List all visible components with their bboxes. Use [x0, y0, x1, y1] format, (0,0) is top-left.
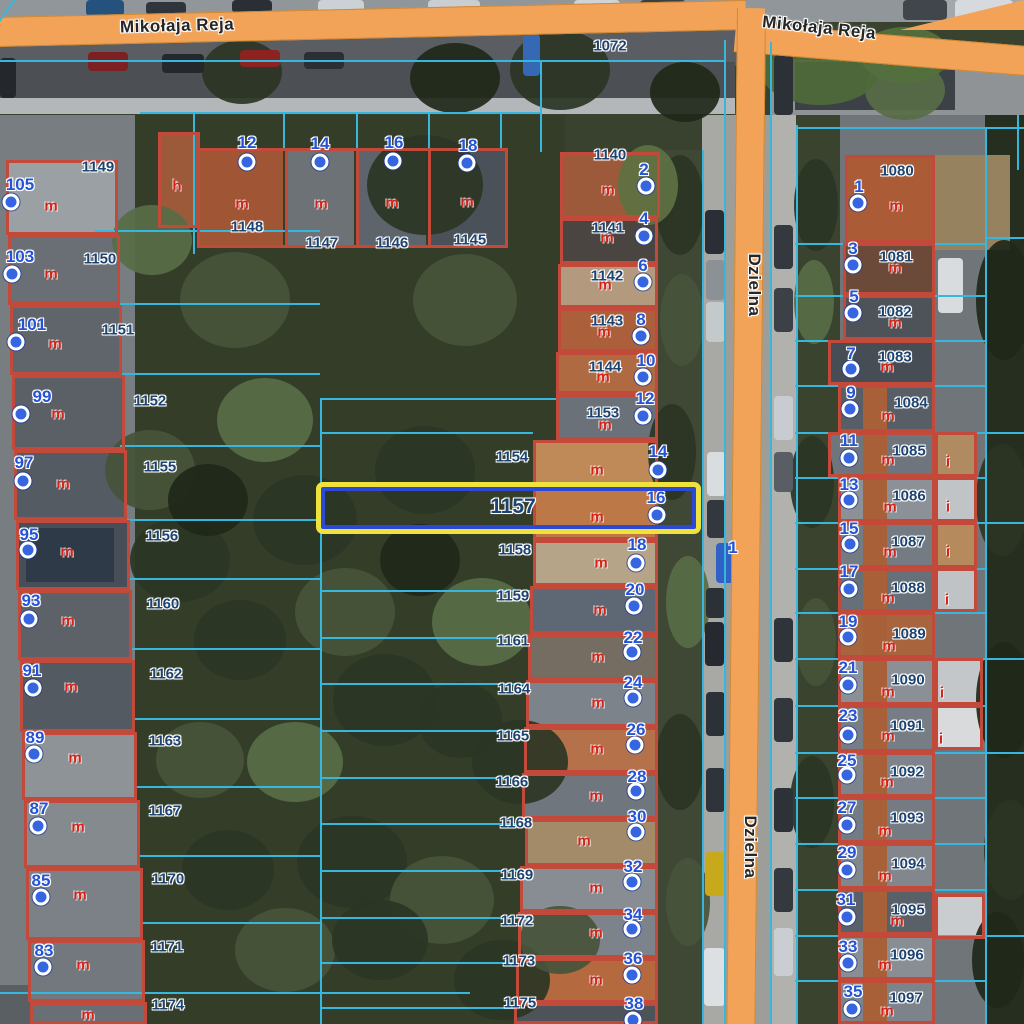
cadastral-parcel-line [110, 373, 320, 375]
address-point-18[interactable] [628, 555, 645, 572]
address-label-1: 1 [728, 538, 737, 558]
building-use-letter: m [878, 823, 891, 840]
address-label-11: 11 [840, 431, 858, 451]
aerial-patch [935, 155, 1010, 250]
parcel-label-1169[interactable]: 1169 [501, 867, 534, 884]
car [0, 58, 16, 98]
building-use-letter: h [172, 178, 181, 195]
building-use-letter: m [589, 880, 602, 897]
tree-canopy [168, 464, 248, 536]
address-label-14: 14 [649, 442, 668, 462]
tree-canopy [656, 714, 704, 810]
building-use-letter: m [68, 750, 81, 767]
cadastral-parcel-line [320, 730, 526, 732]
parcel-label-1175[interactable]: 1175 [504, 995, 537, 1012]
address-point-20[interactable] [626, 598, 643, 615]
cadastral-parcel-line [985, 237, 1024, 239]
building-use-letter: i [945, 592, 949, 609]
address-label-89: 89 [26, 728, 45, 748]
cadastral-parcel-line [95, 303, 320, 305]
address-label-17: 17 [840, 562, 859, 582]
address-label-35: 35 [844, 982, 863, 1002]
address-point-14[interactable] [650, 462, 667, 479]
cadastral-parcel-line [120, 445, 320, 447]
cadastral-parcel-line [320, 398, 558, 400]
tree-canopy [380, 524, 460, 596]
parcel-label-1150[interactable]: 1150 [84, 251, 117, 268]
address-point-103[interactable] [4, 266, 21, 283]
parcel-label-1152[interactable]: 1152 [134, 393, 167, 410]
address-label-15: 15 [840, 519, 859, 539]
parcel-label-1163[interactable]: 1163 [149, 733, 182, 750]
car [774, 928, 793, 976]
address-point-9[interactable] [842, 401, 859, 418]
address-point-83[interactable] [35, 959, 52, 976]
building-use-letter: m [81, 1007, 94, 1024]
building-use-letter: m [56, 476, 69, 493]
cadastral-parcel-line [140, 922, 320, 924]
address-label-34: 34 [624, 905, 643, 925]
parcel-label-1170[interactable]: 1170 [152, 871, 185, 888]
aerial-patch [658, 150, 702, 1024]
address-label-9: 9 [846, 383, 855, 403]
address-point-36[interactable] [624, 967, 641, 984]
address-point-2[interactable] [638, 178, 655, 195]
building-outline [935, 477, 977, 522]
car [774, 225, 793, 269]
parcel-label-1166[interactable]: 1166 [496, 774, 529, 791]
address-label-101: 101 [18, 315, 46, 335]
address-label-6: 6 [638, 256, 647, 276]
cadastral-parcel-line [320, 962, 518, 964]
car [706, 588, 725, 618]
address-point-31[interactable] [839, 909, 856, 926]
address-point-85[interactable] [33, 889, 50, 906]
car [774, 788, 793, 832]
cadastral-parcel-line [320, 823, 525, 825]
cadastral-parcel-line [140, 112, 542, 114]
address-label-25: 25 [838, 751, 857, 771]
cadastral-parcel-line [702, 150, 704, 1024]
building-divider [356, 148, 359, 248]
address-label-18: 18 [628, 535, 647, 555]
address-label-12: 12 [636, 389, 655, 409]
building-use-letter: m [888, 315, 901, 332]
tree-canopy [413, 254, 517, 346]
parcel-label-1093[interactable]: 1093 [890, 810, 923, 827]
parcel-label-1155[interactable]: 1155 [144, 459, 177, 476]
address-label-105: 105 [6, 175, 34, 195]
address-label-31: 31 [837, 890, 856, 910]
address-point-1[interactable] [850, 195, 867, 212]
tree-canopy [650, 62, 720, 122]
building-use-letter: m [60, 544, 73, 561]
car [705, 852, 725, 896]
tree-canopy [976, 444, 1024, 556]
tree-canopy [194, 600, 286, 680]
building-use-letter: m [51, 406, 64, 423]
address-label-83: 83 [35, 941, 54, 961]
parcel-label-1162[interactable]: 1162 [150, 666, 183, 683]
tree-canopy [202, 40, 282, 104]
address-point-4[interactable] [636, 228, 653, 245]
aerial-patch [135, 115, 565, 1024]
tree-canopy [865, 60, 945, 120]
building-use-letter: m [61, 613, 74, 630]
address-label-12: 12 [238, 133, 257, 153]
building-use-letter: m [881, 590, 894, 607]
address-label-26: 26 [627, 720, 646, 740]
address-label-33: 33 [839, 937, 858, 957]
parcel-label-1145[interactable]: 1145 [454, 232, 487, 249]
building-use-letter: m [597, 324, 610, 341]
car [240, 50, 280, 67]
car [774, 288, 793, 332]
parcel-label-1154[interactable]: 1154 [496, 449, 529, 466]
parcel-label-1148[interactable]: 1148 [231, 219, 264, 236]
tree-canopy [333, 654, 437, 746]
address-label-1: 1 [854, 177, 863, 197]
building-use-letter: i [946, 499, 950, 516]
tree-canopy [410, 43, 500, 113]
cadastral-parcel-line [130, 648, 320, 650]
address-label-5: 5 [849, 287, 858, 307]
parcel-label-1160[interactable]: 1160 [147, 596, 180, 613]
address-label-7: 7 [846, 344, 855, 364]
parcel-label-1072[interactable]: 1072 [593, 38, 626, 55]
aerial-patch [0, 62, 735, 100]
parcel-label-1151[interactable]: 1151 [102, 322, 135, 339]
car [938, 258, 963, 313]
tree-canopy [217, 378, 313, 462]
building-use-letter: m [881, 728, 894, 745]
building-divider [428, 148, 431, 248]
building-use-letter: m [594, 555, 607, 572]
address-label-87: 87 [30, 799, 49, 819]
building-use-letter: m [598, 277, 611, 294]
building-use-letter: m [73, 887, 86, 904]
address-label-19: 19 [839, 612, 858, 632]
parcel-label-1165[interactable]: 1165 [497, 728, 530, 745]
aerial-patch [770, 115, 796, 1024]
building-use-letter: m [590, 462, 603, 479]
parcel-label-1092[interactable]: 1092 [890, 764, 923, 781]
parcel-label-1096[interactable]: 1096 [890, 947, 923, 964]
address-label-2: 2 [639, 160, 648, 180]
address-point-14[interactable] [312, 154, 329, 171]
building-use-letter: m [235, 196, 248, 213]
address-point-89[interactable] [26, 746, 43, 763]
cadastral-parcel-line [132, 718, 320, 720]
address-point-23[interactable] [840, 727, 857, 744]
building-use-letter: m [593, 602, 606, 619]
building-use-letter: m [591, 649, 604, 666]
building-outline [8, 235, 120, 305]
building-outline [935, 894, 985, 939]
tree-canopy [182, 830, 274, 910]
cadastral-parcel-line [125, 519, 320, 521]
address-label-99: 99 [33, 387, 52, 407]
cadastral-parcel-line [0, 60, 725, 62]
building-use-letter: m [591, 695, 604, 712]
car [774, 55, 793, 115]
address-label-14: 14 [311, 134, 330, 154]
cadastral-parcel-line [1017, 115, 1019, 170]
building-use-letter: i [946, 454, 950, 471]
building-use-letter: m [878, 957, 891, 974]
car [704, 948, 725, 1006]
building-use-letter: m [881, 452, 894, 469]
parcel-label-1147[interactable]: 1147 [306, 235, 339, 252]
address-label-97: 97 [15, 453, 34, 473]
address-label-16: 16 [385, 133, 404, 153]
parcel-label-1149[interactable]: 1149 [82, 159, 115, 176]
tree-canopy [794, 260, 834, 344]
building-use-letter: i [946, 544, 950, 561]
address-label-30: 30 [628, 807, 647, 827]
address-point-21[interactable] [840, 677, 857, 694]
parcel-label-1167[interactable]: 1167 [149, 803, 182, 820]
building-use-letter: m [64, 679, 77, 696]
address-point-3[interactable] [845, 257, 862, 274]
car [706, 260, 725, 300]
parcel-label-1156[interactable]: 1156 [146, 528, 179, 545]
building-use-letter: m [880, 359, 893, 376]
aerial-patch [985, 115, 1024, 1024]
cadastral-parcel-line [724, 40, 726, 1024]
car [706, 768, 725, 812]
address-label-20: 20 [626, 580, 645, 600]
street-label-dzielna-top: Dzielna [744, 253, 764, 316]
tree-canopy [984, 800, 1024, 900]
building-use-letter: m [71, 819, 84, 836]
address-point-35[interactable] [844, 1001, 861, 1018]
cadastral-parcel-line [135, 786, 320, 788]
address-point-16[interactable] [385, 153, 402, 170]
tree-canopy [295, 568, 395, 656]
address-label-23: 23 [839, 706, 858, 726]
address-point-27[interactable] [839, 817, 856, 834]
address-point-101[interactable] [8, 334, 25, 351]
cadastral-parcel-line [320, 1007, 516, 1009]
parcel-label-1089[interactable]: 1089 [892, 626, 925, 643]
building-use-letter: i [939, 731, 943, 748]
cadastral-parcel-line [130, 578, 320, 580]
building-use-letter: m [883, 544, 896, 561]
parcel-label-1146[interactable]: 1146 [376, 235, 409, 252]
parcel-label-1094[interactable]: 1094 [891, 856, 924, 873]
building-use-letter: m [460, 194, 473, 211]
address-point-12[interactable] [635, 408, 652, 425]
parcel-label-1085[interactable]: 1085 [892, 443, 925, 460]
parcel-label-1084[interactable]: 1084 [894, 395, 927, 412]
address-point-8[interactable] [633, 328, 650, 345]
cadastral-parcel-line [138, 855, 320, 857]
car [523, 34, 540, 76]
street-band-corner-wedge[interactable] [900, 0, 1024, 30]
address-point-99[interactable] [13, 406, 30, 423]
address-label-13: 13 [840, 475, 859, 495]
building-use-letter: m [882, 638, 895, 655]
building-use-letter: m [48, 336, 61, 353]
tree-canopy [297, 816, 407, 908]
cadastral-parcel-line [320, 777, 524, 779]
building-use-letter: m [598, 417, 611, 434]
address-label-95: 95 [20, 525, 39, 545]
building-use-letter: m [878, 868, 891, 885]
parcel-label-1161[interactable]: 1161 [497, 633, 530, 650]
car [774, 698, 793, 742]
parcel-label-1091[interactable]: 1091 [890, 718, 923, 735]
street-label-mikolaja-reja-left: Mikołaja Reja [120, 15, 235, 38]
address-point-93[interactable] [21, 611, 38, 628]
car [705, 210, 724, 254]
tree-canopy [656, 155, 704, 255]
building-use-letter: m [44, 266, 57, 283]
tree-canopy [660, 274, 704, 366]
address-point-12[interactable] [239, 154, 256, 171]
building-use-letter: m [44, 198, 57, 215]
address-point-29[interactable] [839, 862, 856, 879]
cadastral-parcel-line [320, 870, 522, 872]
address-label-29: 29 [838, 843, 857, 863]
address-label-4: 4 [639, 209, 648, 229]
address-point-18[interactable] [459, 155, 476, 172]
address-point-17[interactable] [841, 581, 858, 598]
building-outline [935, 432, 977, 477]
parcel-label-1140[interactable]: 1140 [594, 147, 627, 164]
cadastral-parcel-line [540, 60, 542, 152]
address-label-103: 103 [6, 247, 34, 267]
address-label-24: 24 [624, 673, 643, 693]
building-use-letter: m [883, 499, 896, 516]
address-label-28: 28 [628, 767, 647, 787]
address-label-85: 85 [32, 871, 51, 891]
cadastral-parcel-line [320, 917, 520, 919]
building-use-letter: m [589, 788, 602, 805]
address-label-22: 22 [624, 628, 643, 648]
address-point-87[interactable] [30, 818, 47, 835]
aerial-patch [795, 62, 955, 110]
address-label-18: 18 [459, 136, 478, 156]
address-point-11[interactable] [841, 450, 858, 467]
parcel-label-1164[interactable]: 1164 [498, 681, 531, 698]
car [774, 868, 793, 912]
address-point-33[interactable] [840, 955, 857, 972]
parcel-label-1097[interactable]: 1097 [889, 990, 922, 1007]
building-use-letter: m [589, 925, 602, 942]
car [162, 54, 204, 73]
parcel-label-1158[interactable]: 1158 [499, 542, 532, 559]
building-use-letter: m [880, 774, 893, 791]
cadastral-parcel-line [356, 112, 358, 150]
street-label-dzielna-bottom: Dzielna [740, 815, 760, 878]
tree-canopy [332, 900, 428, 980]
address-label-10: 10 [637, 351, 656, 371]
parcel-label-1171[interactable]: 1171 [151, 939, 184, 956]
building-use-letter: m [314, 196, 327, 213]
building-use-letter: m [881, 684, 894, 701]
building-use-letter: m [590, 741, 603, 758]
selected-parcel-label[interactable]: 1157 [490, 495, 536, 519]
address-label-21: 21 [839, 658, 858, 678]
car [706, 302, 725, 342]
building-use-letter: m [600, 230, 613, 247]
address-point-6[interactable] [635, 274, 652, 291]
tree-canopy [180, 252, 290, 348]
address-label-32: 32 [624, 857, 643, 877]
parcel-label-1172[interactable]: 1172 [501, 913, 534, 930]
map-canvas[interactable]: 1072114911481147114611451150115111521140… [0, 0, 1024, 1024]
tree-canopy [976, 240, 1024, 360]
cadastral-parcel-line [770, 42, 772, 1024]
building-use-letter: m [596, 369, 609, 386]
parcel-label-1159[interactable]: 1159 [497, 588, 530, 605]
address-label-8: 8 [636, 310, 645, 330]
car [903, 0, 947, 20]
car [774, 618, 793, 662]
car [706, 692, 725, 736]
parcel-label-1174[interactable]: 1174 [152, 997, 185, 1014]
building-divider [285, 148, 288, 248]
parcel-label-1173[interactable]: 1173 [503, 953, 536, 970]
cadastral-parcel-line [798, 127, 1024, 129]
address-label-36: 36 [624, 949, 643, 969]
cadastral-parcel-line [500, 112, 502, 150]
cadastral-parcel-line [283, 112, 285, 150]
building-outline [935, 568, 977, 612]
building-use-letter: m [589, 972, 602, 989]
address-point-5[interactable] [845, 305, 862, 322]
parcel-label-1080[interactable]: 1080 [880, 163, 913, 180]
address-point-105[interactable] [3, 194, 20, 211]
building-use-letter: m [601, 182, 614, 199]
address-point-10[interactable] [635, 369, 652, 386]
parcel-label-1090[interactable]: 1090 [891, 672, 924, 689]
building-use-letter: m [880, 1003, 893, 1020]
address-label-27: 27 [838, 798, 857, 818]
address-label-91: 91 [23, 661, 42, 681]
building-use-letter: m [881, 408, 894, 425]
parcel-label-1088[interactable]: 1088 [891, 580, 924, 597]
address-label-3: 3 [848, 239, 857, 259]
building-use-letter: m [890, 913, 903, 930]
building-use-letter: m [385, 195, 398, 212]
address-point-91[interactable] [25, 680, 42, 697]
address-point-97[interactable] [15, 473, 32, 490]
car [705, 622, 724, 666]
building-use-letter: m [888, 260, 901, 277]
building-outline [935, 522, 977, 568]
address-label-93: 93 [22, 591, 41, 611]
cadastral-parcel-line [985, 127, 987, 1024]
cadastral-parcel-line [428, 112, 430, 150]
street-band-mikolaja-reja-left[interactable] [0, 0, 746, 47]
tree-canopy [794, 159, 838, 251]
car [774, 452, 793, 492]
building-use-letter: i [940, 685, 944, 702]
tree-canopy [247, 722, 343, 802]
cadastral-parcel-line [320, 432, 533, 434]
building-use-letter: m [889, 198, 902, 215]
car [774, 396, 793, 440]
parcel-label-1086[interactable]: 1086 [892, 488, 925, 505]
address-label-38: 38 [625, 994, 644, 1014]
building-use-letter: m [76, 957, 89, 974]
parcel-label-1168[interactable]: 1168 [500, 815, 533, 832]
tree-canopy [418, 682, 502, 758]
building-use-letter: m [577, 833, 590, 850]
